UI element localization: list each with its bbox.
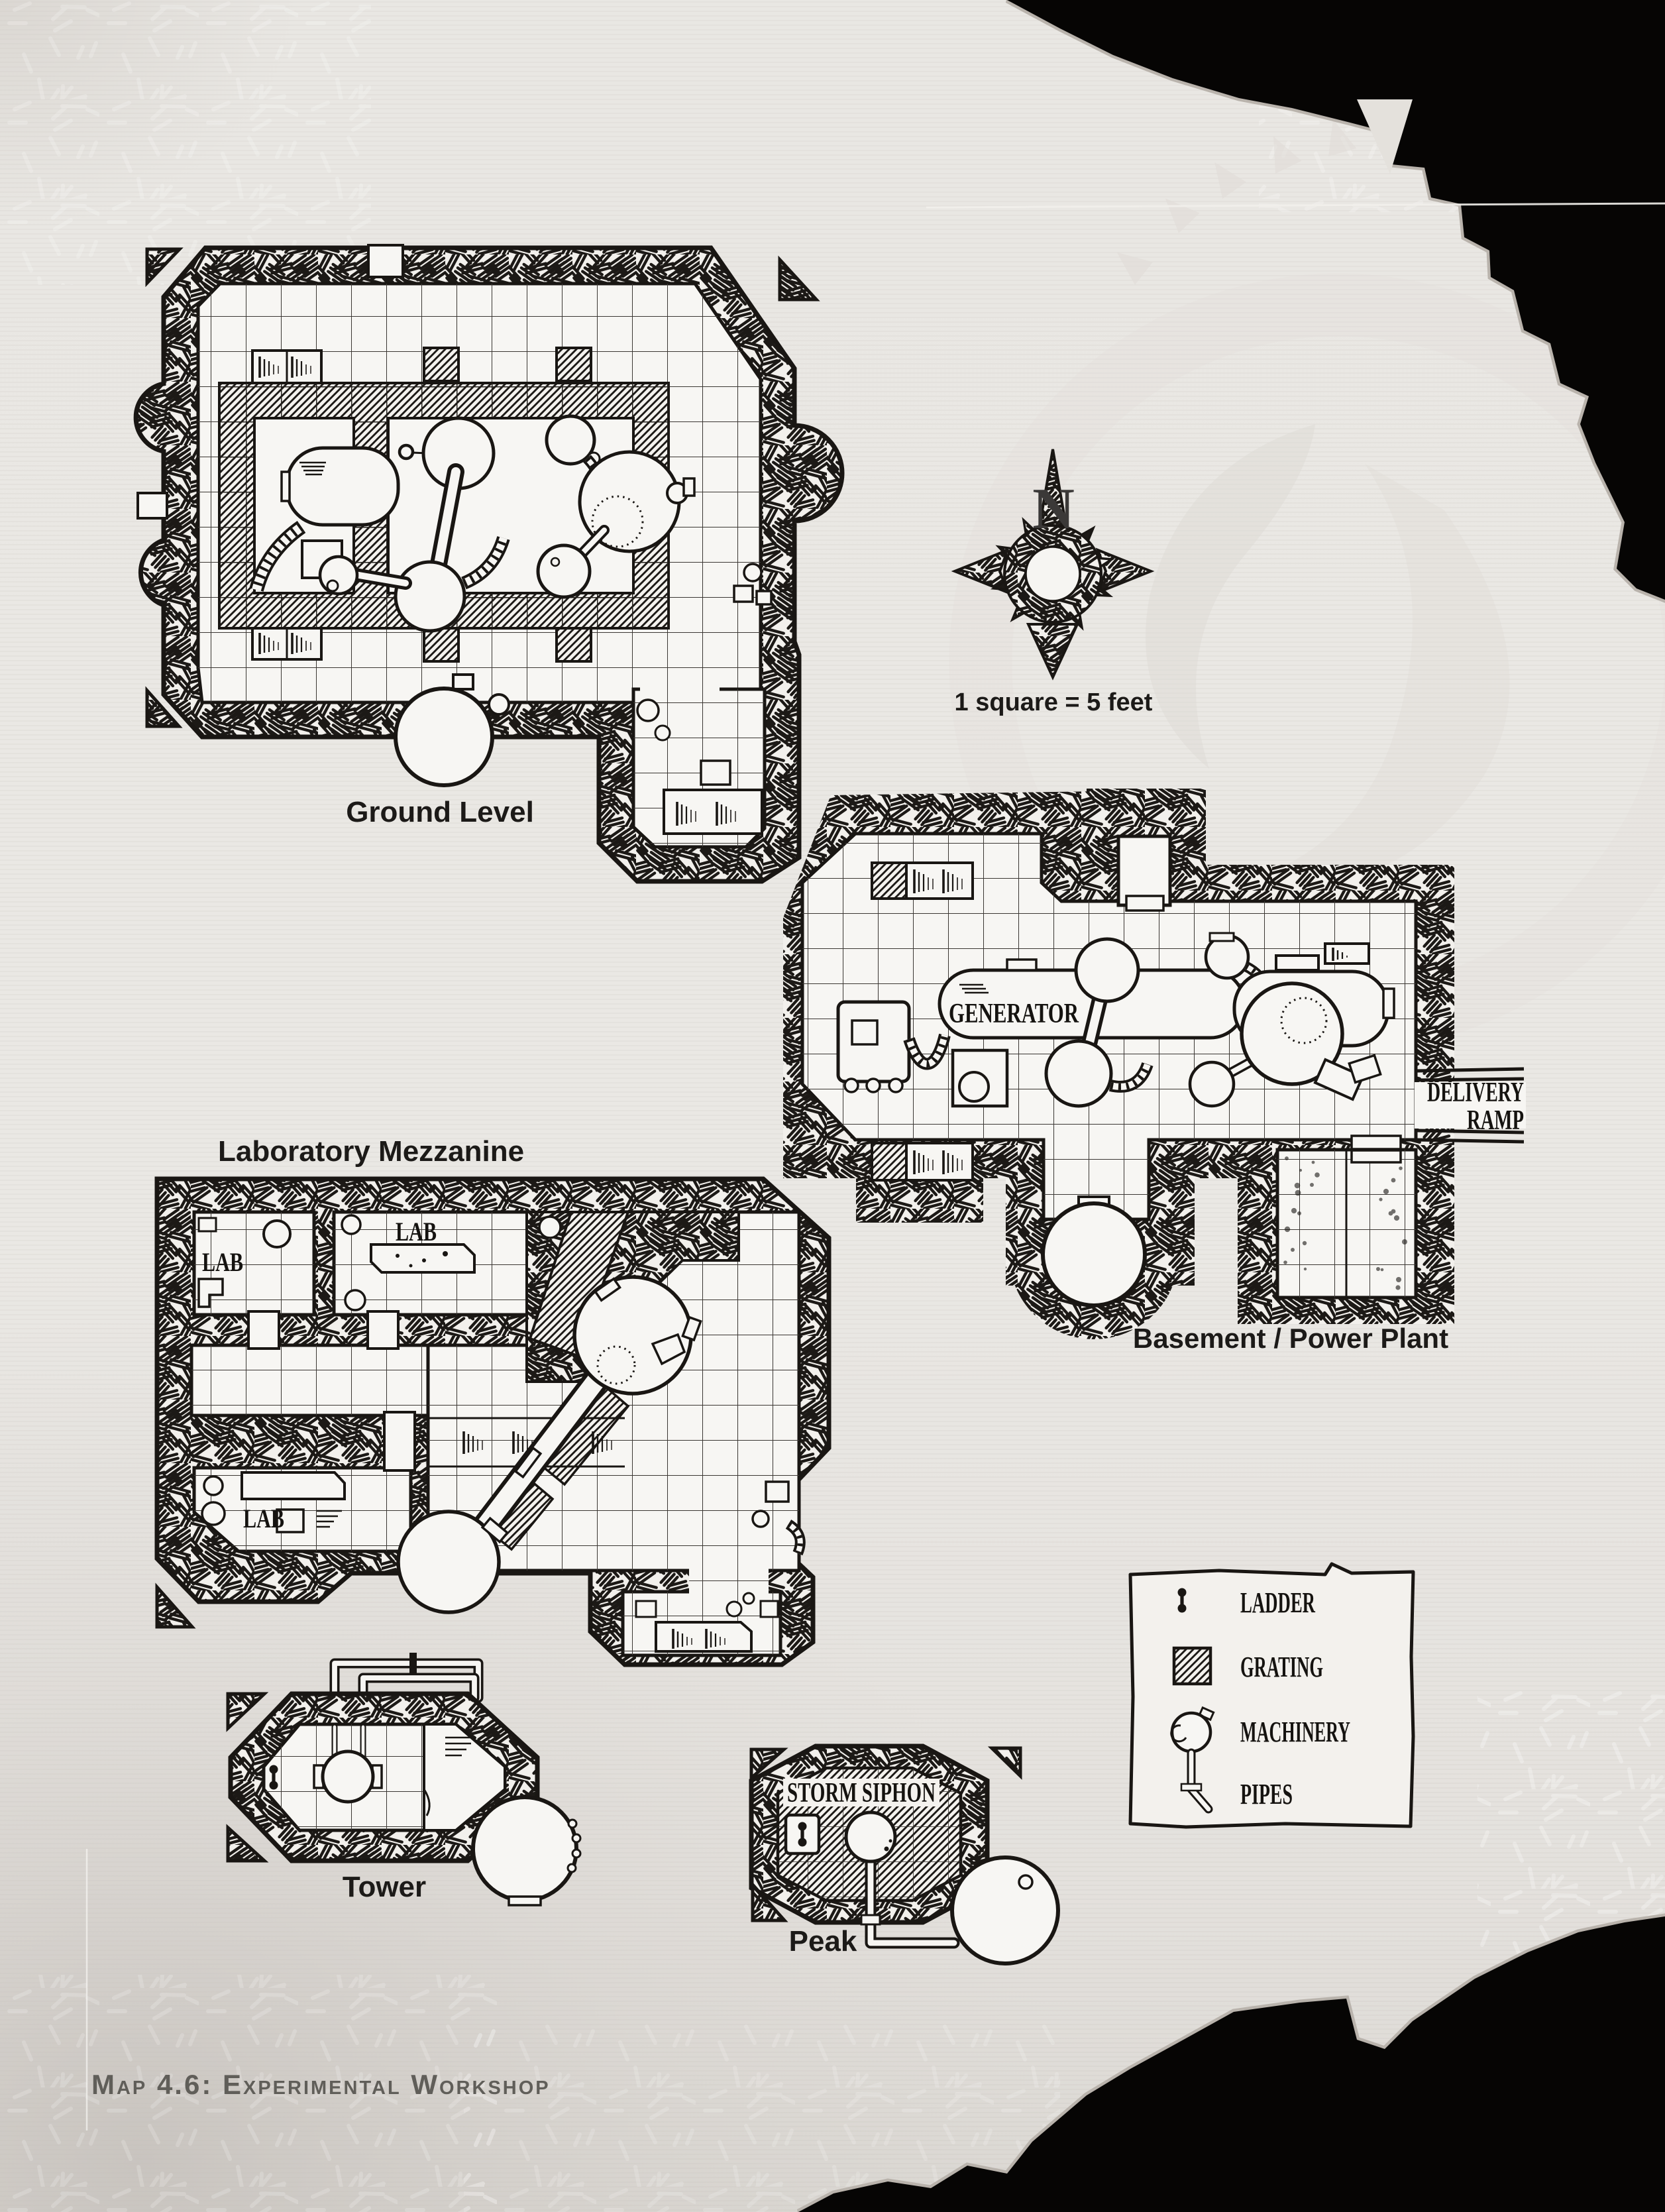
svg-text:LAB: LAB — [396, 1217, 437, 1246]
svg-text:PIPES: PIPES — [1240, 1778, 1293, 1810]
svg-text:MACHINERY: MACHINERY — [1240, 1716, 1350, 1748]
svg-text:Map 4.6: Experimental Workshop: Map 4.6: Experimental Workshop — [91, 2069, 551, 2100]
svg-text:GRATING: GRATING — [1240, 1651, 1323, 1683]
svg-text:Basement / Power Plant: Basement / Power Plant — [1133, 1323, 1448, 1354]
svg-text:Ground Level: Ground Level — [346, 796, 534, 828]
svg-text:1 square = 5 feet: 1 square = 5 feet — [955, 689, 1153, 716]
svg-text:Tower: Tower — [343, 1871, 426, 1903]
svg-text:LAB: LAB — [243, 1504, 284, 1533]
svg-text:Laboratory Mezzanine: Laboratory Mezzanine — [218, 1135, 524, 1168]
svg-text:LAB: LAB — [202, 1247, 243, 1277]
svg-text:Peak: Peak — [789, 1925, 857, 1958]
svg-text:DELIVERY: DELIVERY — [1427, 1078, 1524, 1108]
svg-text:GENERATOR: GENERATOR — [949, 999, 1079, 1029]
svg-text:LADDER: LADDER — [1240, 1586, 1316, 1619]
svg-text:STORM SIPHON: STORM SIPHON — [787, 1778, 936, 1808]
svg-text:N: N — [1032, 477, 1075, 541]
svg-text:RAMP: RAMP — [1467, 1105, 1524, 1136]
